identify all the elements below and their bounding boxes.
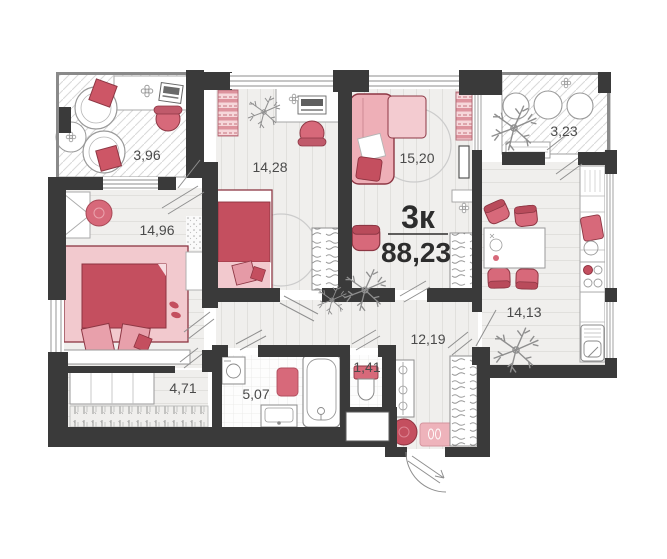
stool	[567, 93, 593, 119]
total-area-label: 88,23	[381, 237, 451, 268]
window	[369, 73, 459, 89]
shoe-mat	[420, 423, 453, 446]
wall-segment	[158, 177, 176, 190]
entrance-arrow	[408, 456, 444, 483]
wall-segment	[578, 152, 607, 165]
wall-segment	[48, 366, 175, 373]
sofa-cushion	[356, 156, 383, 181]
single-bed	[216, 190, 272, 290]
wall-segment	[427, 288, 478, 302]
stove	[580, 262, 605, 292]
room-label-hallway: 12,19	[410, 331, 445, 347]
laptop-icon	[298, 96, 326, 114]
wall-segment	[459, 70, 502, 95]
duct-shaft	[346, 412, 389, 441]
cutting-board	[580, 214, 604, 241]
balcony-pillar	[57, 107, 71, 133]
bathroom-sink	[261, 405, 297, 427]
wall-segment	[186, 70, 204, 178]
bath-mat	[277, 368, 298, 396]
room-label-kitchen: 14,13	[506, 304, 541, 320]
wall-segment	[472, 347, 490, 365]
room-label-living-room: 15,20	[399, 150, 434, 166]
dining-chair	[488, 268, 511, 289]
railing	[56, 72, 188, 75]
apartment-type-label: 3к	[401, 199, 436, 235]
kitchen-sink	[581, 325, 604, 361]
wall-segment	[598, 72, 611, 93]
railing	[56, 72, 59, 177]
dresser	[70, 372, 154, 404]
wall-segment	[202, 162, 218, 308]
window	[605, 174, 615, 288]
room-label-balcony-top-left: 3,96	[133, 147, 160, 163]
window	[605, 302, 615, 358]
railing	[502, 72, 610, 75]
wall-segment	[204, 72, 232, 90]
pouf	[86, 200, 112, 226]
window	[48, 300, 64, 352]
laptop-icon	[159, 83, 183, 104]
wall-segment	[477, 365, 490, 457]
window	[230, 73, 333, 89]
french-window	[473, 95, 482, 150]
room-label-corridor: 4,71	[169, 380, 196, 396]
room-label-balcony-top-right: 3,23	[550, 123, 577, 139]
room-label-wc: 1,41	[353, 359, 380, 375]
wall-segment	[445, 447, 490, 457]
room-label-bathroom: 5,07	[242, 386, 269, 402]
floor-plan-canvas: 3,96 14,28 15,20 3,23 14,96 14,13 12,19 …	[0, 0, 667, 559]
armchair	[352, 226, 380, 251]
wall-segment	[605, 358, 617, 378]
dining-chair	[516, 269, 539, 290]
wall-segment	[48, 177, 66, 300]
wall-segment	[258, 345, 350, 357]
entrance-door-arc	[406, 452, 446, 492]
wall-segment	[48, 427, 397, 447]
tv-icon	[459, 146, 469, 178]
wall-segment	[605, 288, 617, 302]
floor-plan: 3,96 14,28 15,20 3,23 14,96 14,13 12,19 …	[0, 0, 667, 559]
wall-segment	[212, 345, 228, 357]
bookshelf	[218, 90, 238, 136]
bathtub	[303, 355, 340, 427]
dining-chair	[514, 205, 538, 227]
room-label-bedroom-1: 14,96	[139, 222, 174, 238]
tv-stand	[456, 92, 472, 140]
stool	[534, 91, 562, 119]
hall-cabinet	[450, 356, 477, 446]
room-label-bedroom-2: 14,28	[252, 159, 287, 175]
wall-segment	[472, 150, 482, 312]
clothes-rail	[70, 406, 208, 427]
wall-segment	[202, 288, 280, 302]
headboard	[62, 350, 190, 364]
wall-segment	[502, 152, 545, 165]
wall-segment	[352, 288, 395, 302]
window	[103, 177, 158, 190]
toilet-bowl	[358, 379, 374, 400]
dining-table	[484, 228, 545, 268]
wall-segment	[490, 365, 617, 378]
wall-segment	[385, 447, 407, 457]
stool	[503, 93, 529, 119]
washing-machine	[222, 357, 245, 384]
wall-segment	[56, 177, 103, 190]
wall-segment	[338, 74, 352, 302]
wicker-chair	[83, 131, 125, 173]
wall-segment	[212, 357, 222, 427]
